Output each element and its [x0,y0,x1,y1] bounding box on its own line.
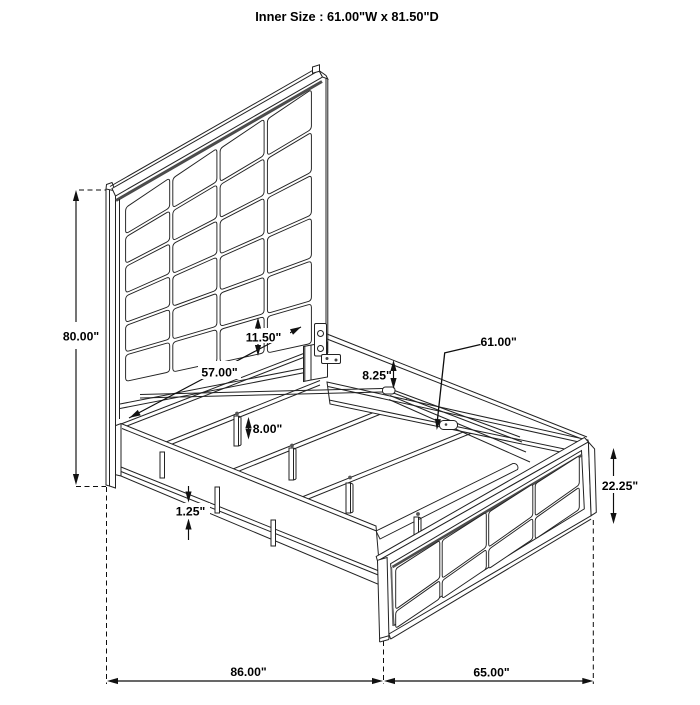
svg-text:61.00": 61.00" [481,335,517,349]
svg-text:1.25": 1.25" [176,505,206,519]
svg-text:11.50": 11.50" [246,331,282,345]
svg-text:65.00": 65.00" [473,666,509,680]
svg-text:Inner Size : 61.00"W x 81.50"D: Inner Size : 61.00"W x 81.50"D [255,9,439,24]
svg-text:8.25": 8.25" [362,369,392,383]
svg-text:22.25": 22.25" [602,479,638,493]
svg-text:8.00": 8.00" [253,422,283,436]
svg-text:86.00": 86.00" [230,665,266,679]
svg-text:80.00": 80.00" [63,330,99,344]
svg-text:57.00": 57.00" [201,366,237,380]
